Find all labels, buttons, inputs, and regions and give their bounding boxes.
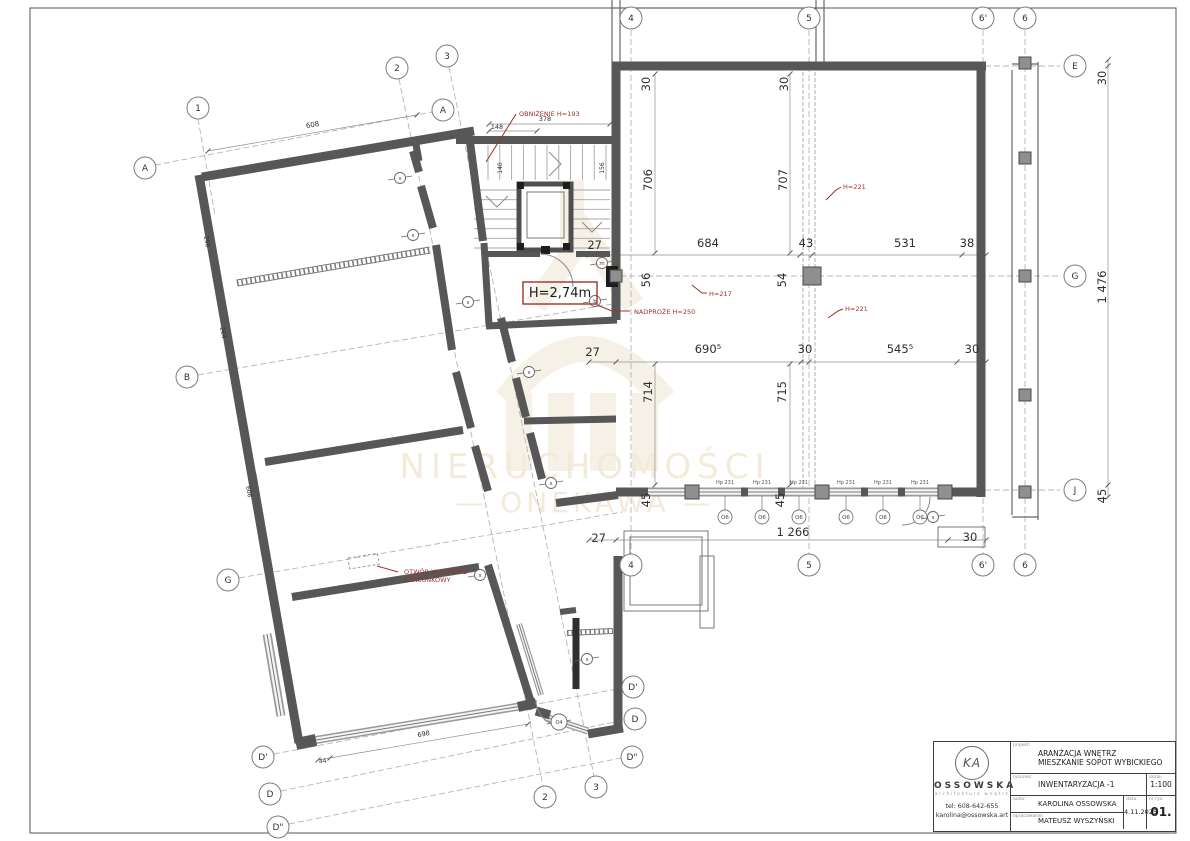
svg-text:s: s: [479, 573, 482, 579]
svg-text:O6: O6: [842, 515, 850, 521]
svg-text:D': D': [628, 683, 637, 693]
svg-text:Hp 231: Hp 231: [716, 480, 734, 486]
svg-text:Hp 231: Hp 231: [790, 480, 808, 486]
title-block-fields: projekt: ARANŻACJA WNĘTRZ MIESZKANIE SOP…: [1011, 742, 1175, 831]
svg-text:54: 54: [775, 273, 789, 288]
field-rysunek-label: rysunek:: [1013, 775, 1032, 780]
field-rysunek: rysunek: INWENTARYZACJA -1: [1011, 773, 1146, 795]
author-name: KAROLINA OSSOWSKA: [1011, 800, 1123, 809]
svg-text:30: 30: [1095, 71, 1109, 86]
field-nr-label: nr rys:: [1149, 797, 1164, 802]
field-data-label: data:: [1126, 797, 1138, 802]
svg-text:OBNIŻENIE H=193: OBNIŻENIE H=193: [519, 109, 580, 118]
svg-text:715: 715: [775, 381, 789, 403]
svg-text:606: 606: [244, 485, 253, 498]
field-opracowanie-label: opracowanie:: [1013, 814, 1043, 819]
svg-text:OTWÓR W STROPIE: OTWÓR W STROPIE: [404, 567, 467, 576]
svg-text:684: 684: [697, 236, 719, 250]
svg-text:s: s: [550, 481, 553, 487]
svg-text:3: 3: [444, 52, 450, 62]
phone-number: tel: 608-642-655: [934, 803, 1010, 812]
svg-text:44: 44: [318, 757, 327, 765]
svg-text:s: s: [586, 657, 589, 663]
svg-text:D: D: [632, 715, 639, 725]
svg-text:O6: O6: [916, 515, 924, 521]
svg-text:545⁵: 545⁵: [887, 342, 914, 356]
email-address: karolina@ossowska.art: [934, 812, 1010, 821]
svg-text:O4: O4: [555, 720, 562, 726]
svg-text:250: 250: [202, 235, 211, 248]
svg-text:4: 4: [628, 561, 634, 571]
svg-text:140: 140: [497, 162, 504, 174]
project-title: ARANŻACJA WNĘTRZ MIESZKANIE SOPOT WYBICK…: [1011, 749, 1175, 767]
svg-text:707: 707: [776, 169, 790, 191]
svg-text:2: 2: [394, 64, 400, 74]
date-value: 4.11.2025: [1124, 808, 1146, 817]
svg-text:Hp 231: Hp 231: [837, 480, 855, 486]
field-projekt: projekt: ARANŻACJA WNĘTRZ MIESZKANIE SOP…: [1011, 742, 1175, 773]
svg-text:Hp 231: Hp 231: [911, 480, 929, 486]
svg-text:O6: O6: [795, 515, 803, 521]
svg-text:30: 30: [963, 530, 978, 544]
svg-text:Hp 231: Hp 231: [753, 480, 771, 486]
svg-text:6': 6': [979, 14, 987, 24]
field-skala-label: skala:: [1149, 775, 1162, 780]
svg-text:s: s: [932, 515, 935, 521]
svg-text:D": D": [626, 753, 637, 763]
svg-text:30: 30: [639, 77, 653, 92]
svg-text:56: 56: [639, 273, 653, 288]
field-autor-label: autor:: [1013, 797, 1026, 802]
svg-text:J: J: [1073, 486, 1077, 496]
svg-text:531: 531: [894, 236, 916, 250]
svg-text:156: 156: [599, 162, 606, 174]
svg-text:30: 30: [777, 77, 791, 92]
svg-text:264: 264: [218, 326, 227, 339]
svg-text:m: m: [599, 261, 604, 267]
drawing-title: INWENTARYZACJA -1: [1011, 780, 1146, 789]
svg-text:O6: O6: [758, 515, 766, 521]
svg-text:1 476: 1 476: [1095, 271, 1109, 304]
svg-text:43: 43: [799, 236, 814, 250]
svg-text:s: s: [528, 370, 531, 376]
svg-text:6': 6': [979, 561, 987, 571]
svg-text:45: 45: [773, 493, 787, 508]
field-nr-rys: nr rys: 01.: [1146, 795, 1175, 829]
svg-text:Hp 231: Hp 231: [874, 480, 892, 486]
svg-text:3: 3: [593, 783, 599, 793]
svg-text:608: 608: [305, 120, 320, 130]
svg-text:G: G: [225, 576, 232, 586]
svg-text:D": D": [272, 823, 283, 833]
field-projekt-label: projekt:: [1013, 743, 1030, 748]
svg-text:27: 27: [587, 238, 602, 252]
svg-text:A: A: [440, 106, 447, 116]
svg-text:s: s: [412, 233, 415, 239]
svg-text:5: 5: [806, 14, 812, 24]
svg-text:6: 6: [1022, 561, 1028, 571]
svg-text:5: 5: [806, 561, 812, 571]
svg-text:D': D': [258, 753, 267, 763]
field-opracowanie: opracowanie: MATEUSZ WYSZYŃSKI: [1011, 812, 1123, 829]
svg-text:O6: O6: [721, 515, 729, 521]
svg-text:1 266: 1 266: [777, 525, 810, 539]
field-autor: autor: KAROLINA OSSOWSKA: [1011, 795, 1123, 812]
title-block: KA OSSOWSKA architektura wnętrz tel: 608…: [933, 741, 1176, 832]
svg-text:148: 148: [491, 123, 503, 131]
floor-plan-sheet: NIERUCHOMOŚCI— ONEKAWA —O6Hp 231O6Hp 231…: [0, 0, 1190, 841]
svg-text:NIERUCHOMOŚCI: NIERUCHOMOŚCI: [400, 446, 771, 487]
field-data: data: 4.11.2025: [1123, 795, 1146, 829]
svg-text:45: 45: [1095, 489, 1109, 504]
floor-plan-canvas: NIERUCHOMOŚCI— ONEKAWA —O6Hp 231O6Hp 231…: [0, 0, 1190, 841]
svg-text:706: 706: [641, 169, 655, 191]
svg-text:6: 6: [1022, 14, 1028, 24]
logo-monogram: KA: [963, 756, 981, 770]
svg-text:2: 2: [542, 793, 548, 803]
svg-text:A: A: [142, 164, 149, 174]
svg-text:698: 698: [417, 729, 431, 739]
svg-text:H=217: H=217: [709, 290, 732, 298]
svg-text:690⁵: 690⁵: [695, 342, 722, 356]
svg-text:s: s: [399, 176, 402, 182]
svg-text:27: 27: [585, 345, 600, 359]
title-block-logo-cell: KA OSSOWSKA architektura wnętrz tel: 608…: [934, 742, 1011, 831]
logo-name: OSSOWSKA: [934, 781, 1010, 791]
svg-text:H=2,74m: H=2,74m: [529, 286, 591, 301]
svg-text:SZACUNKOWY: SZACUNKOWY: [404, 576, 451, 584]
svg-text:27: 27: [591, 531, 606, 545]
svg-text:E: E: [1072, 62, 1078, 72]
svg-text:O6: O6: [879, 515, 887, 521]
svg-text:D: D: [267, 790, 274, 800]
field-skala: skala: 1:100: [1146, 773, 1175, 795]
svg-text:G: G: [1072, 272, 1079, 282]
svg-text:714: 714: [641, 381, 655, 403]
sheet-number: 01.: [1147, 808, 1175, 817]
svg-text:30: 30: [965, 342, 980, 356]
svg-text:38: 38: [960, 236, 975, 250]
svg-text:s: s: [467, 300, 470, 306]
svg-text:H=221: H=221: [843, 183, 866, 191]
svg-text:NADPROŻE H=250: NADPROŻE H=250: [634, 307, 695, 316]
svg-text:H=221: H=221: [845, 305, 868, 313]
svg-text:B: B: [184, 373, 190, 383]
logo-subtitle: architektura wnętrz: [934, 792, 1010, 797]
svg-text:30: 30: [798, 342, 813, 356]
scale-value: 1:100: [1147, 780, 1175, 789]
svg-text:45: 45: [639, 493, 653, 508]
ossowska-logo-icon: KA: [955, 746, 989, 780]
svg-text:1: 1: [195, 104, 201, 114]
svg-text:4: 4: [628, 14, 634, 24]
